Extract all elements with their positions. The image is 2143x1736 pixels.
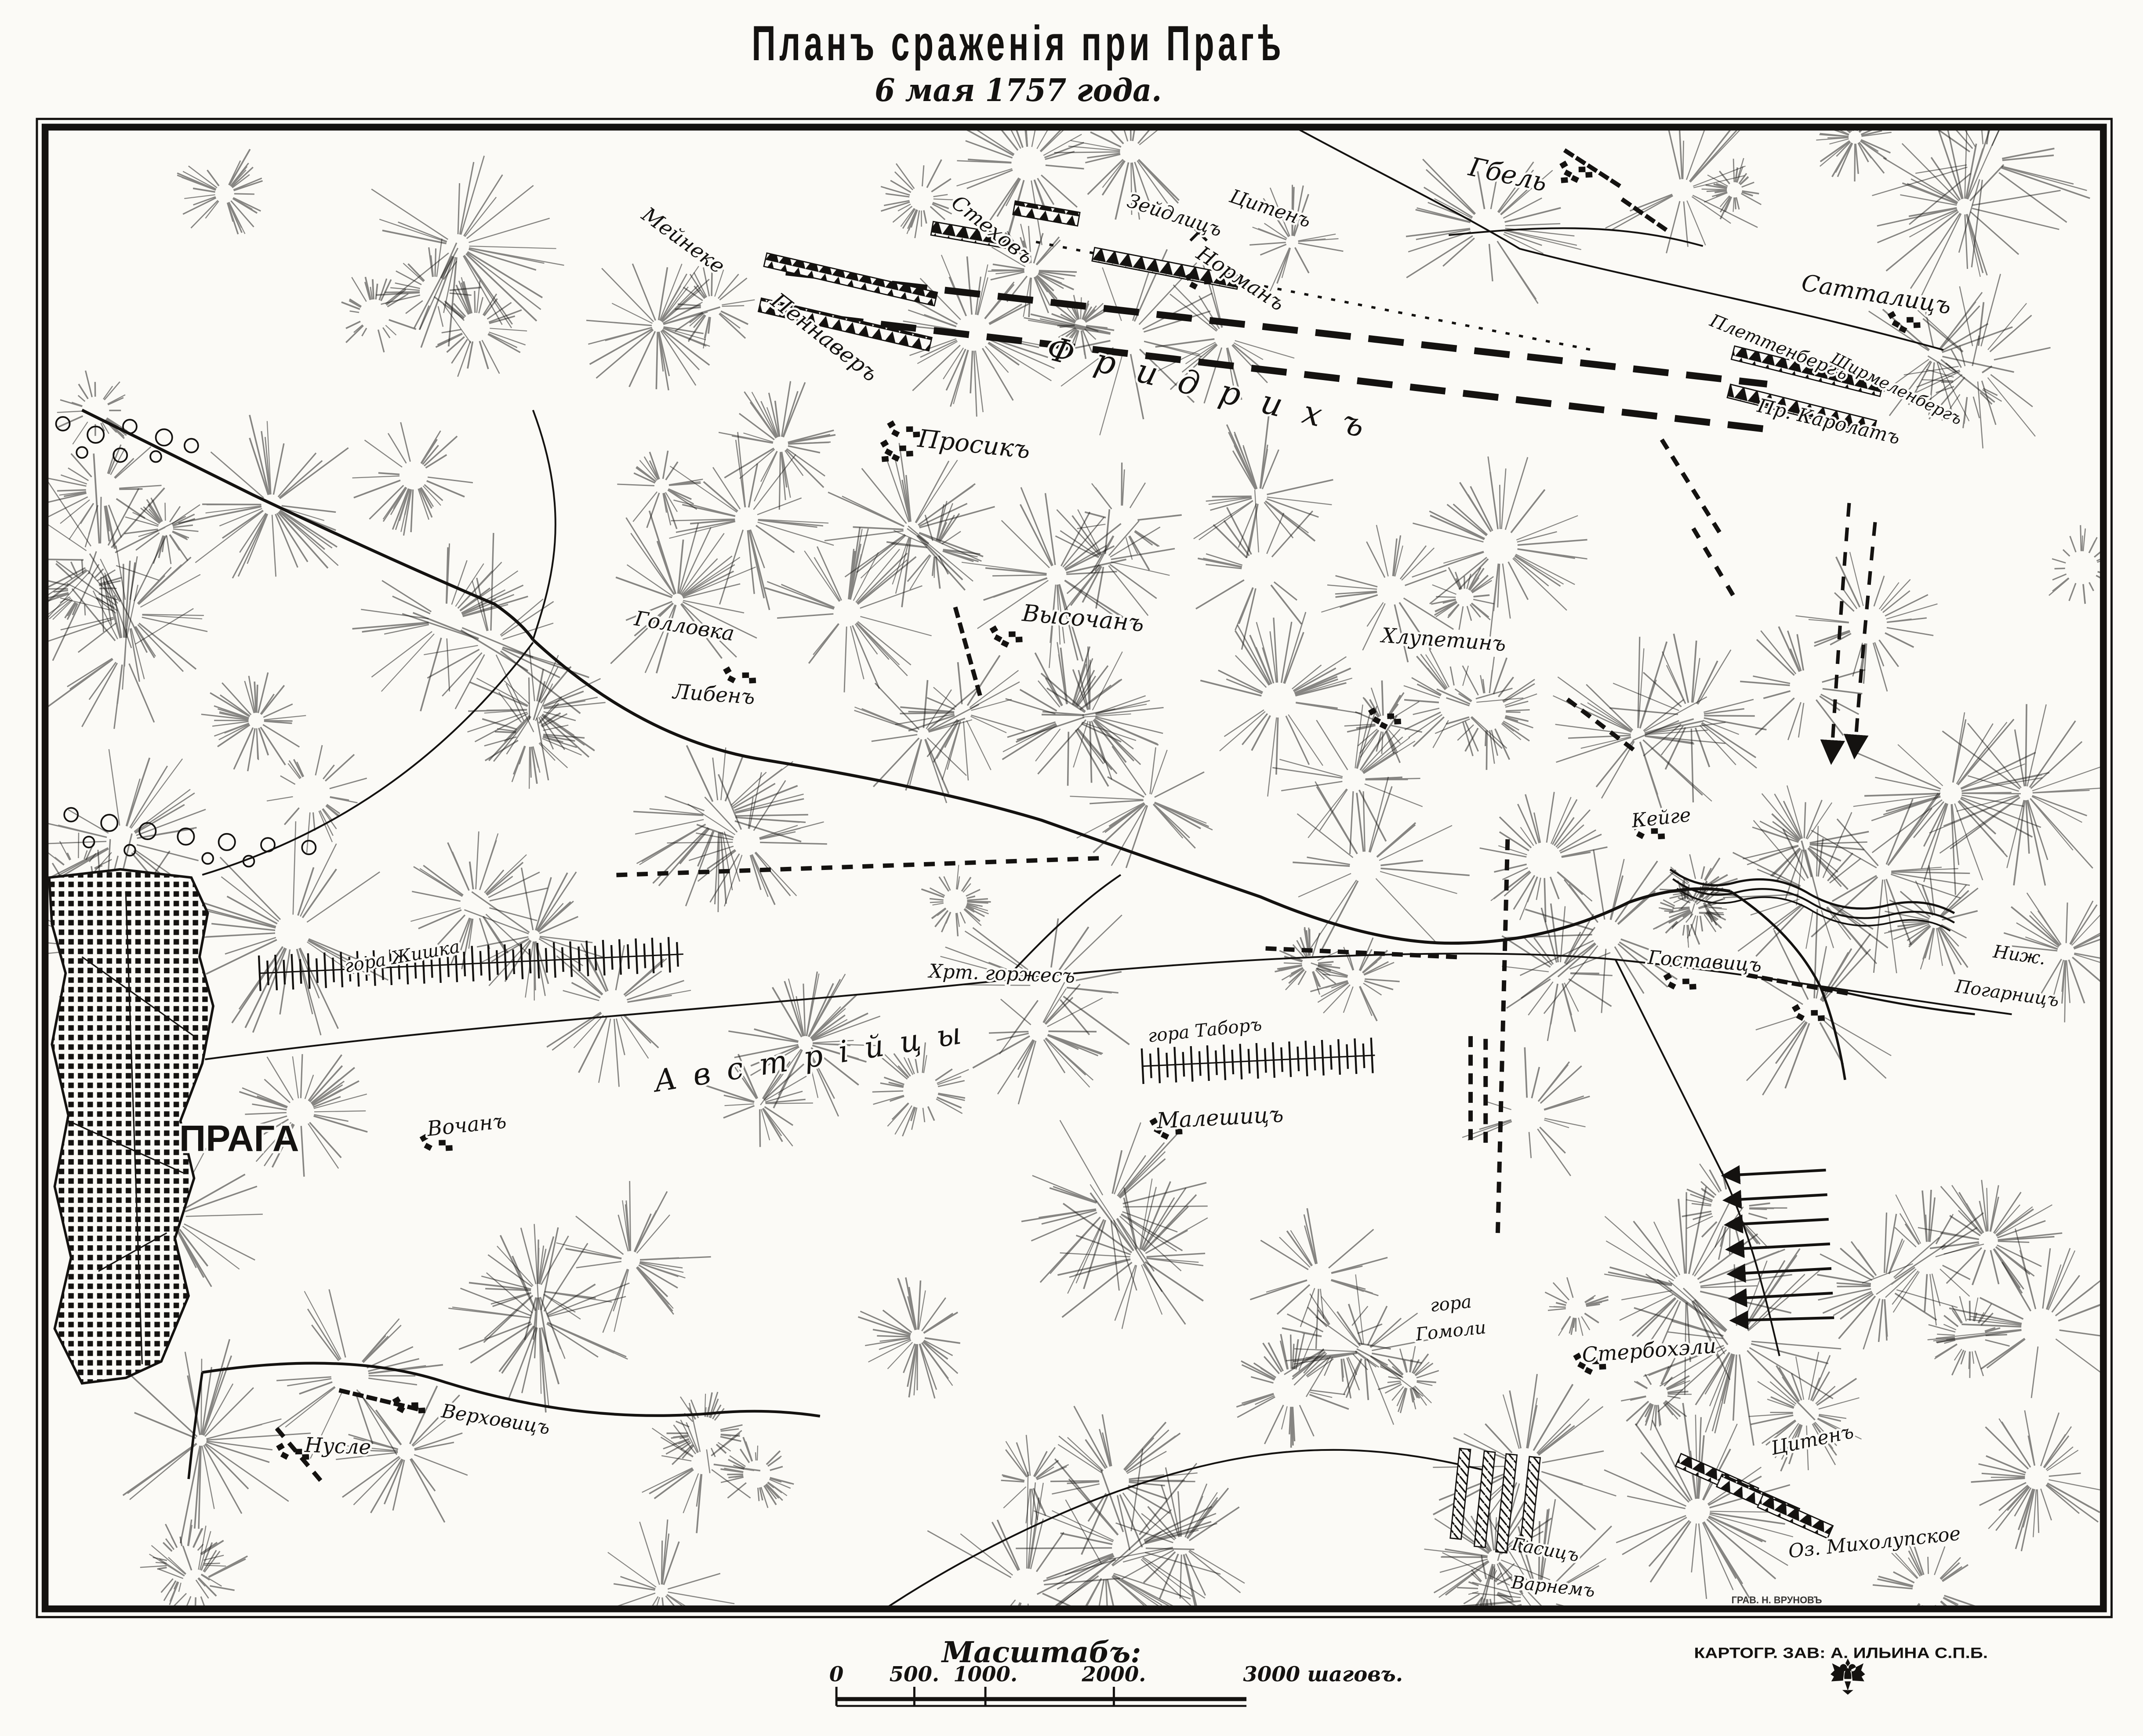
- hachure-stroke: [1554, 1307, 1566, 1307]
- hachure-stroke: [927, 1531, 1011, 1577]
- hachure-stroke: [272, 515, 276, 577]
- hachure-stroke: [1044, 989, 1066, 1023]
- hachure-stroke: [1143, 1264, 1185, 1324]
- hachure-stroke: [1250, 1280, 1307, 1300]
- hachure-stroke: [2055, 568, 2065, 569]
- hachure-stroke: [1537, 1399, 1589, 1453]
- hachure-stroke: [1506, 710, 1529, 710]
- hachure-stroke: [1052, 1484, 1099, 1494]
- hachure-stroke: [656, 332, 657, 389]
- pond: [76, 447, 87, 458]
- hachure-stroke: [927, 698, 955, 710]
- hachure-stroke: [2052, 559, 2066, 563]
- hachure-stroke: [1988, 1486, 2029, 1529]
- hachure-stroke: [1379, 826, 1452, 861]
- hachure-stroke: [1700, 1164, 1719, 1192]
- hachure-stroke: [724, 448, 774, 478]
- hachure-stroke: [1003, 1487, 1026, 1508]
- hachure-stroke: [1041, 175, 1077, 207]
- hachure-stroke: [1359, 986, 1372, 1016]
- hachure-stroke: [1331, 1279, 1366, 1289]
- hachure-stroke: [674, 1425, 696, 1454]
- hachure-stroke: [1119, 1132, 1180, 1197]
- hachure-stroke: [1457, 1587, 1478, 1588]
- village-block: [1796, 1013, 1805, 1021]
- pond: [101, 815, 117, 831]
- hachure-stroke: [683, 1473, 699, 1513]
- hachure-stroke: [28, 819, 107, 837]
- village-block: [1689, 984, 1696, 989]
- hachure-stroke: [70, 659, 113, 689]
- ridge-tick: [1191, 1046, 1193, 1082]
- hachure-stroke: [922, 165, 924, 186]
- hachure-stroke: [1733, 197, 1734, 212]
- hachure-stroke: [435, 248, 436, 276]
- ridge-tick: [677, 942, 678, 967]
- map-label-seydlitz: Зейдлицъ: [1124, 190, 1224, 241]
- hachure-stroke: [279, 460, 322, 498]
- hachure-stroke: [247, 514, 268, 564]
- pond: [202, 853, 213, 864]
- ridge-tick: [1298, 1047, 1299, 1071]
- hachure-stroke: [1757, 640, 1794, 675]
- hachure-stroke: [1518, 1616, 1533, 1656]
- hachure-stroke: [686, 745, 712, 801]
- hill-burst: [1747, 909, 1891, 1095]
- hachure-stroke: [379, 219, 447, 242]
- ridge-tick: [1363, 1044, 1365, 1068]
- map-canvas: МейнекеСтеховъЗейдлицъЦитенъНорманъПенна…: [0, 0, 2143, 1736]
- hachure-stroke: [205, 1444, 248, 1489]
- hachure-stroke: [1382, 732, 1383, 754]
- road: [202, 642, 533, 875]
- hachure-stroke: [1869, 311, 1929, 351]
- pond: [124, 845, 135, 856]
- hachure-stroke: [2048, 1250, 2075, 1310]
- hachure-stroke: [756, 526, 794, 552]
- unit-dash: [1725, 585, 1735, 596]
- hachure-stroke: [537, 873, 567, 931]
- hachure-stroke: [346, 326, 363, 343]
- hachure-stroke: [915, 1057, 918, 1073]
- hachure-stroke: [82, 560, 83, 573]
- hachure-stroke: [414, 866, 462, 896]
- hill-burst: [124, 498, 200, 564]
- hachure-stroke: [817, 547, 841, 601]
- hachure-stroke: [127, 758, 149, 826]
- hachure-stroke: [205, 201, 218, 218]
- hachure-stroke: [521, 868, 533, 930]
- hachure-stroke: [1276, 718, 1278, 775]
- hachure-stroke: [1141, 1265, 1162, 1315]
- hachure-stroke: [1689, 1187, 1706, 1274]
- unit-dash: [1714, 565, 1723, 577]
- hachure-stroke: [1518, 549, 1575, 558]
- ridge-tick: [1322, 1040, 1324, 1076]
- village-block: [1559, 161, 1568, 169]
- hachure-stroke: [1279, 759, 1343, 776]
- hachure-stroke: [1281, 1334, 1288, 1369]
- hachure-stroke: [2074, 953, 2121, 962]
- unit-dash: [1026, 858, 1037, 863]
- hachure-stroke: [1380, 871, 1457, 893]
- hachure-stroke: [464, 910, 528, 934]
- hachure-stroke: [1124, 1438, 1154, 1470]
- unit-dash: [1483, 1076, 1488, 1087]
- hachure-stroke: [967, 896, 975, 899]
- hachure-stroke: [624, 1015, 658, 1048]
- hill-burst: [617, 451, 703, 529]
- hachure-stroke: [588, 327, 652, 344]
- hill-burst: [1813, 93, 1892, 181]
- hachure-stroke: [668, 1592, 734, 1603]
- hachure-stroke: [1467, 606, 1471, 620]
- hachure-stroke: [576, 1261, 621, 1268]
- ridge-tick: [1183, 1052, 1184, 1076]
- hachure-stroke: [1637, 1298, 1676, 1337]
- hachure-stroke: [185, 1186, 257, 1211]
- hachure-stroke: [1003, 724, 1057, 752]
- hachure-stroke: [264, 715, 306, 720]
- unit-dash: [1496, 1202, 1501, 1213]
- map-label-friedrich: Фридрихъ: [1043, 329, 1389, 450]
- hachure-stroke: [201, 1575, 210, 1580]
- ridge-tick: [1347, 1044, 1348, 1069]
- hachure-stroke: [759, 826, 798, 838]
- unit-dash: [1468, 1110, 1473, 1121]
- map-label-gollovka: Голловка: [632, 607, 736, 646]
- hachure-stroke: [1472, 1593, 1521, 1597]
- hachure-stroke: [753, 454, 795, 510]
- village-block: [1811, 1010, 1818, 1016]
- hachure-stroke: [927, 159, 941, 188]
- hill-burst: [267, 745, 367, 853]
- hachure-stroke: [325, 754, 354, 781]
- map-label-gora-south: гора: [1429, 1291, 1472, 1316]
- village-block: [1204, 279, 1211, 284]
- hachure-stroke: [410, 908, 461, 921]
- hachure-stroke: [1505, 224, 1560, 226]
- hill-burst: [1873, 1539, 1978, 1645]
- unit-dash: [953, 606, 960, 618]
- hachure-stroke: [1990, 1185, 1998, 1231]
- hachure-stroke: [293, 821, 296, 914]
- hachure-stroke: [123, 564, 124, 638]
- hachure-stroke: [750, 855, 761, 890]
- hachure-stroke: [488, 872, 540, 898]
- hachure-stroke: [371, 631, 432, 677]
- ridge-tick: [324, 953, 326, 988]
- hachure-stroke: [465, 197, 496, 237]
- hachure-stroke: [486, 855, 527, 894]
- unit-dash: [1503, 940, 1507, 951]
- hachure-stroke: [1370, 1313, 1417, 1348]
- hachure-stroke: [1155, 772, 1204, 797]
- ridge-tick: [587, 941, 588, 976]
- hachure-stroke: [663, 451, 668, 479]
- village-block: [1379, 722, 1388, 730]
- hachure-stroke: [479, 341, 488, 369]
- ridge-tick: [1281, 1047, 1282, 1072]
- hachure-stroke: [668, 490, 697, 509]
- hachure-stroke: [2049, 1473, 2081, 1476]
- hachure-stroke: [1199, 501, 1253, 540]
- hachure-stroke: [1864, 794, 1940, 796]
- hachure-stroke: [1439, 1473, 1507, 1500]
- hachure-stroke: [1568, 736, 1631, 738]
- hachure-stroke: [1742, 1223, 1760, 1244]
- hachure-stroke: [1544, 1118, 1585, 1127]
- hachure-stroke: [1365, 1359, 1368, 1400]
- hachure-stroke: [861, 536, 906, 578]
- hachure-stroke: [1062, 1262, 1132, 1317]
- hachure-stroke: [1503, 1395, 1519, 1449]
- hachure-stroke: [1966, 214, 1980, 277]
- hachure-stroke: [463, 256, 502, 325]
- unit-dash: [1670, 455, 1680, 467]
- ridge-tick: [497, 950, 498, 975]
- village-block: [418, 1408, 425, 1413]
- hachure-stroke: [1751, 1415, 1793, 1424]
- retreat-arrow: [1725, 1170, 1826, 1175]
- hachure-stroke: [1090, 660, 1090, 710]
- hachure-stroke: [612, 303, 652, 323]
- hachure-stroke: [1987, 1339, 2025, 1368]
- hachure-stroke: [1941, 1186, 1982, 1234]
- hachure-stroke: [967, 899, 988, 900]
- hachure-stroke: [1180, 1555, 1181, 1598]
- hachure-stroke: [1119, 1152, 1166, 1197]
- hachure-stroke: [1836, 557, 1860, 607]
- hachure-stroke: [563, 990, 599, 1000]
- hachure-stroke: [470, 862, 473, 889]
- hachure-stroke: [2070, 536, 2076, 552]
- hachure-stroke: [312, 1081, 344, 1104]
- hachure-stroke: [245, 1113, 286, 1114]
- cavalry-move-arrow: [1855, 522, 1875, 754]
- hachure-stroke: [229, 202, 242, 232]
- hachure-stroke: [1360, 986, 1377, 1021]
- hachure-stroke: [1002, 520, 1050, 568]
- hill-burst: [1275, 927, 1340, 994]
- hachure-stroke: [350, 311, 359, 312]
- ridge-tick: [1158, 1047, 1160, 1083]
- ridge-tick: [554, 942, 556, 978]
- hachure-stroke: [1610, 1267, 1672, 1284]
- unit-dash: [1504, 900, 1508, 911]
- hachure-stroke: [1070, 796, 1143, 800]
- hachure-stroke: [1525, 1047, 1527, 1098]
- hachure-stroke: [1747, 1351, 1815, 1420]
- hachure-stroke: [142, 617, 207, 632]
- hachure-stroke: [2002, 167, 2087, 191]
- hachure-stroke: [490, 328, 527, 331]
- hachure-stroke: [352, 476, 400, 478]
- hachure-stroke: [1700, 1291, 1791, 1313]
- hachure-stroke: [1666, 921, 1677, 933]
- hachure-stroke: [1691, 924, 1700, 944]
- unit-dash: [985, 859, 996, 864]
- hachure-stroke: [803, 984, 805, 1036]
- hachure-stroke: [1654, 1222, 1680, 1275]
- hachure-stroke: [1035, 729, 1060, 761]
- hachure-stroke: [1972, 1352, 1974, 1364]
- hachure-stroke: [494, 716, 530, 761]
- unit-dash: [780, 867, 791, 872]
- hachure-stroke: [1298, 243, 1344, 251]
- hachure-stroke: [1887, 627, 1933, 635]
- unit-dash: [1468, 1073, 1473, 1084]
- hachure-stroke: [1122, 469, 1125, 505]
- village-block: [1189, 282, 1198, 290]
- hachure-stroke: [1545, 1616, 1573, 1691]
- hachure-stroke: [1895, 1293, 1937, 1320]
- hachure-stroke: [1135, 531, 1158, 546]
- ridge-tick: [644, 943, 646, 968]
- hachure-stroke: [2082, 536, 2082, 551]
- hachure-stroke: [1702, 723, 1756, 757]
- hachure-stroke: [475, 291, 475, 313]
- hachure-stroke: [1113, 1575, 1162, 1605]
- unit-dash: [842, 865, 853, 870]
- hachure-stroke: [1253, 227, 1286, 240]
- hachure-stroke: [1470, 1613, 1527, 1679]
- hachure-stroke: [138, 557, 191, 604]
- hachure-stroke: [1554, 1609, 1627, 1654]
- hill-burst: [1293, 777, 1469, 952]
- retreat-arrow: [1733, 1318, 1834, 1320]
- hachure-stroke: [722, 306, 745, 306]
- hachure-stroke: [2070, 901, 2093, 944]
- hachure-stroke: [1917, 85, 1972, 149]
- hachure-stroke: [1988, 303, 2027, 350]
- hachure-stroke: [883, 1310, 912, 1333]
- hachure-stroke: [1346, 1359, 1362, 1398]
- hachure-stroke: [428, 477, 473, 483]
- hachure-stroke: [916, 460, 957, 523]
- hachure-stroke: [1697, 661, 1718, 704]
- hill-burst: [1194, 414, 1333, 558]
- hachure-stroke: [365, 480, 400, 493]
- village-block: [899, 446, 906, 451]
- ridge-tick: [1338, 1039, 1340, 1075]
- hachure-stroke: [19, 571, 87, 625]
- hachure-stroke: [1955, 1311, 1962, 1323]
- unit-dash: [1703, 547, 1712, 558]
- hachure-stroke: [1500, 485, 1500, 529]
- hachure-stroke: [293, 1056, 298, 1098]
- hachure-stroke: [86, 371, 92, 397]
- hachure-stroke: [1516, 516, 1578, 540]
- hachure-stroke: [970, 351, 973, 393]
- hachure-stroke: [650, 452, 659, 479]
- unit-dash: [801, 866, 812, 871]
- hachure-stroke: [234, 194, 254, 194]
- hachure-stroke: [1980, 1482, 2026, 1505]
- hachure-stroke: [1981, 1338, 2024, 1369]
- hachure-stroke: [219, 725, 250, 746]
- ridge-tick: [603, 940, 605, 975]
- hachure-stroke: [421, 638, 441, 711]
- hachure-stroke: [389, 320, 416, 329]
- hachure-stroke: [1347, 725, 1376, 732]
- hachure-stroke: [1704, 193, 1728, 202]
- hachure-stroke: [1435, 602, 1457, 615]
- hachure-stroke: [766, 1103, 813, 1103]
- village-block: [1658, 834, 1665, 839]
- hachure-stroke: [1665, 727, 1685, 769]
- hachure-stroke: [930, 899, 944, 900]
- unit-dash: [821, 865, 832, 870]
- column-bar: [1013, 201, 1080, 226]
- hachure-stroke: [1804, 802, 1805, 838]
- hachure-stroke: [491, 533, 494, 631]
- hachure-stroke: [245, 948, 285, 1028]
- hachure-stroke: [82, 663, 117, 727]
- hachure-stroke: [1701, 866, 1704, 879]
- hachure-stroke: [1377, 732, 1381, 752]
- hachure-stroke: [635, 1192, 667, 1252]
- hachure-stroke: [2069, 583, 2076, 601]
- hachure-stroke: [761, 451, 777, 482]
- hachure-stroke: [633, 492, 657, 522]
- hachure-stroke: [1940, 927, 1968, 968]
- hachure-stroke: [1423, 159, 1475, 214]
- hachure-stroke: [514, 746, 525, 775]
- hachure-stroke: [194, 1597, 196, 1641]
- map-label-gbel: Гбель: [1466, 151, 1550, 197]
- hachure-stroke: [464, 255, 512, 328]
- hachure-stroke: [1267, 513, 1284, 554]
- hachure-stroke: [378, 473, 400, 474]
- hachure-stroke: [842, 496, 904, 526]
- hill-burst: [371, 156, 564, 348]
- hachure-stroke: [1295, 247, 1309, 273]
- hachure-stroke: [1539, 1406, 1603, 1455]
- hachure-stroke: [1928, 1557, 1929, 1574]
- hachure-stroke: [736, 817, 800, 822]
- village-block: [280, 1452, 289, 1460]
- hachure-stroke: [1537, 1129, 1570, 1176]
- hill-burst: [1811, 793, 1970, 973]
- unit-dash: [1265, 946, 1276, 951]
- hachure-stroke: [1879, 583, 1899, 609]
- hachure-stroke: [682, 504, 735, 516]
- hachure-stroke: [447, 638, 450, 692]
- hachure-stroke: [725, 1104, 754, 1105]
- hachure-stroke: [566, 1249, 621, 1259]
- hachure-stroke: [1896, 1195, 1921, 1243]
- ridge-tick: [1289, 1041, 1291, 1077]
- hachure-stroke: [1130, 483, 1145, 508]
- map-subtitle: 6 мая 1757 года.: [875, 72, 1162, 109]
- hachure-stroke: [2059, 1330, 2138, 1341]
- ridge-tick: [652, 938, 654, 973]
- hachure-stroke: [1147, 1254, 1205, 1257]
- hachure-stroke: [1735, 197, 1736, 209]
- village-block: [994, 634, 1002, 642]
- hachure-stroke: [985, 568, 1046, 574]
- hachure-stroke: [1355, 1274, 1363, 1345]
- hachure-stroke: [1032, 1175, 1097, 1202]
- unit-dash: [1088, 856, 1099, 861]
- hachure-stroke: [202, 1446, 214, 1509]
- hachure-stroke: [365, 440, 402, 468]
- hachure-stroke: [1505, 208, 1561, 222]
- pond: [185, 439, 198, 453]
- ridge-tick: [259, 956, 261, 991]
- hachure-stroke: [917, 1344, 918, 1380]
